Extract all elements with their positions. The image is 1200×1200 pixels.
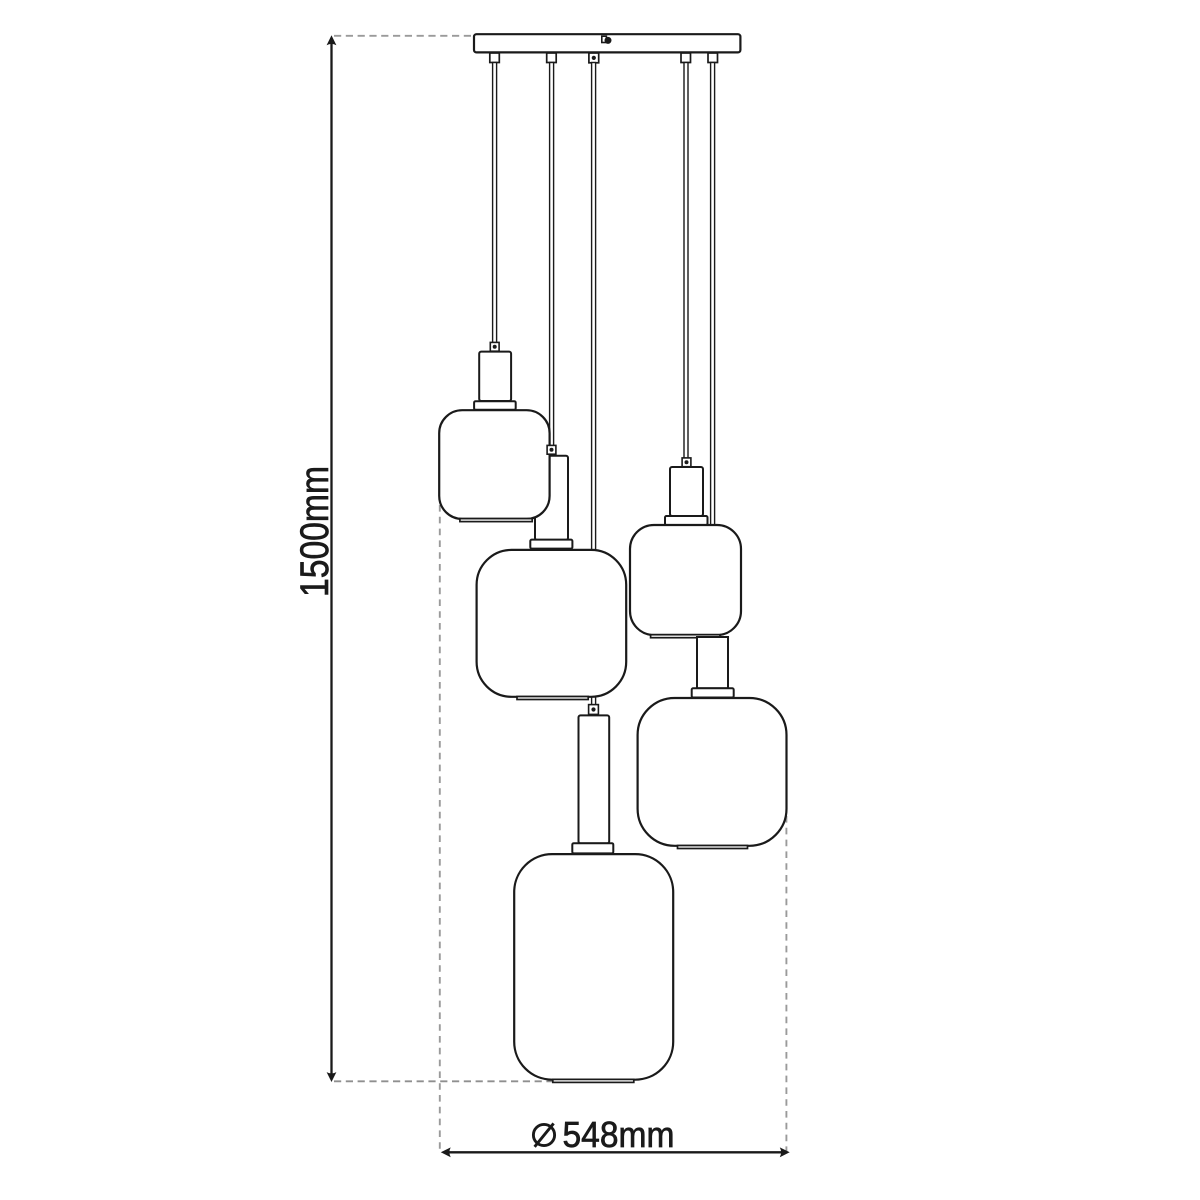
svg-text:1500mm: 1500mm: [293, 466, 337, 597]
svg-text:548mm: 548mm: [563, 1114, 675, 1155]
